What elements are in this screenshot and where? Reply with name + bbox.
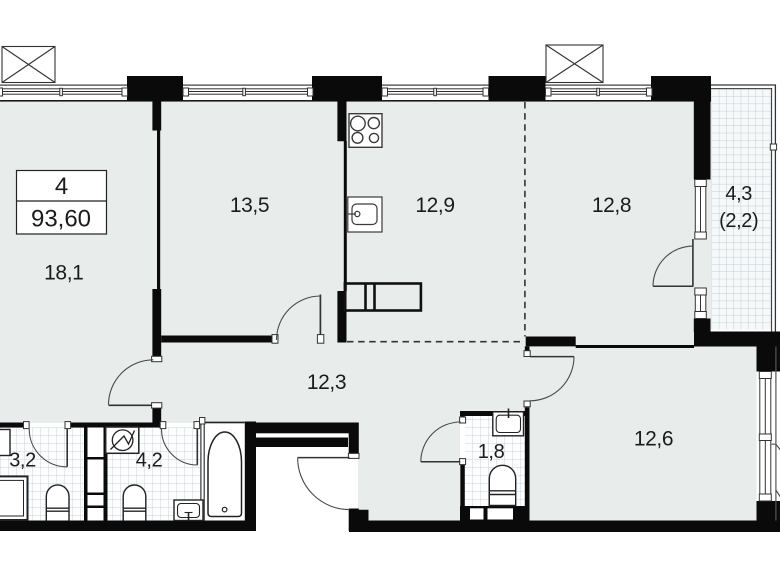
svg-text:12,3: 12,3 xyxy=(307,371,346,394)
svg-text:3,2: 3,2 xyxy=(9,449,36,471)
svg-text:13,5: 13,5 xyxy=(230,194,269,217)
svg-text:4: 4 xyxy=(55,173,68,200)
svg-text:12,9: 12,9 xyxy=(415,194,454,217)
svg-text:18,1: 18,1 xyxy=(44,262,83,285)
svg-text:4,2: 4,2 xyxy=(136,449,163,471)
svg-text:12,6: 12,6 xyxy=(634,427,673,450)
svg-text:1,8: 1,8 xyxy=(478,441,505,463)
svg-text:12,8: 12,8 xyxy=(592,194,631,217)
svg-text:93,60: 93,60 xyxy=(31,206,91,233)
svg-text:4,3: 4,3 xyxy=(725,183,752,205)
svg-text:(2,2): (2,2) xyxy=(719,210,758,232)
